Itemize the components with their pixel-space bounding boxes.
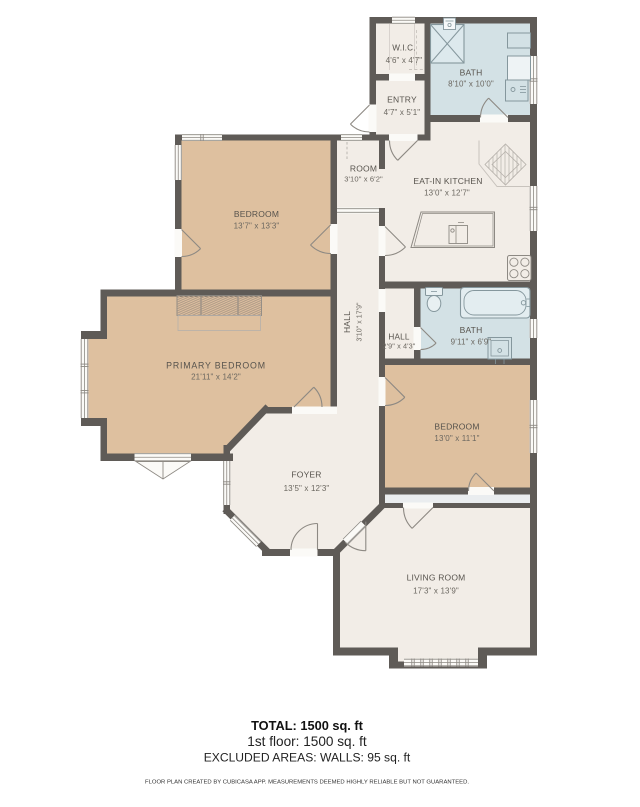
svg-text:TOTAL: 1500 sq. ft: TOTAL: 1500 sq. ft [251, 718, 364, 733]
svg-text:BEDROOM: BEDROOM [434, 422, 479, 432]
svg-text:13'5" x 12'3": 13'5" x 12'3" [284, 484, 330, 493]
svg-text:3'10" x 17'9": 3'10" x 17'9" [357, 302, 364, 342]
svg-text:4'7" x 5'1": 4'7" x 5'1" [384, 108, 421, 117]
svg-text:4'6" x 4'7": 4'6" x 4'7" [386, 56, 423, 65]
svg-text:21'11" x 14'2": 21'11" x 14'2" [191, 373, 241, 382]
svg-text:BATH: BATH [460, 325, 483, 335]
svg-text:ENTRY: ENTRY [387, 95, 417, 105]
svg-text:HALL: HALL [342, 311, 352, 333]
svg-text:EXCLUDED AREAS: WALLS: 95 sq.: EXCLUDED AREAS: WALLS: 95 sq. ft [204, 751, 411, 765]
svg-text:PRIMARY BEDROOM: PRIMARY BEDROOM [166, 361, 266, 371]
svg-text:BEDROOM: BEDROOM [234, 209, 279, 219]
svg-text:13'7" x 13'3": 13'7" x 13'3" [234, 222, 280, 231]
svg-text:FLOOR PLAN CREATED BY CUBICASA: FLOOR PLAN CREATED BY CUBICASA APP. MEAS… [145, 780, 469, 786]
svg-text:9'11" x 6'9": 9'11" x 6'9" [451, 338, 492, 347]
svg-text:FOYER: FOYER [291, 470, 321, 480]
svg-text:LIVING ROOM: LIVING ROOM [407, 573, 466, 583]
svg-text:W.I.C.: W.I.C. [392, 44, 416, 53]
svg-text:ROOM: ROOM [350, 164, 377, 174]
svg-text:EAT-IN KITCHEN: EAT-IN KITCHEN [413, 176, 482, 186]
svg-text:1st floor: 1500 sq. ft: 1st floor: 1500 sq. ft [247, 734, 367, 749]
svg-text:13'0" x 11'1": 13'0" x 11'1" [434, 434, 479, 443]
svg-text:2'9" x 4'3": 2'9" x 4'3" [382, 342, 415, 351]
svg-text:HALL: HALL [388, 333, 410, 342]
svg-text:3'10" x 6'2": 3'10" x 6'2" [344, 175, 383, 184]
svg-text:17'3" x 13'9": 17'3" x 13'9" [413, 587, 459, 596]
svg-text:13'0" x 12'7": 13'0" x 12'7" [424, 189, 470, 198]
svg-text:BATH: BATH [460, 68, 483, 78]
svg-text:8'10" x 10'0": 8'10" x 10'0" [448, 80, 494, 89]
